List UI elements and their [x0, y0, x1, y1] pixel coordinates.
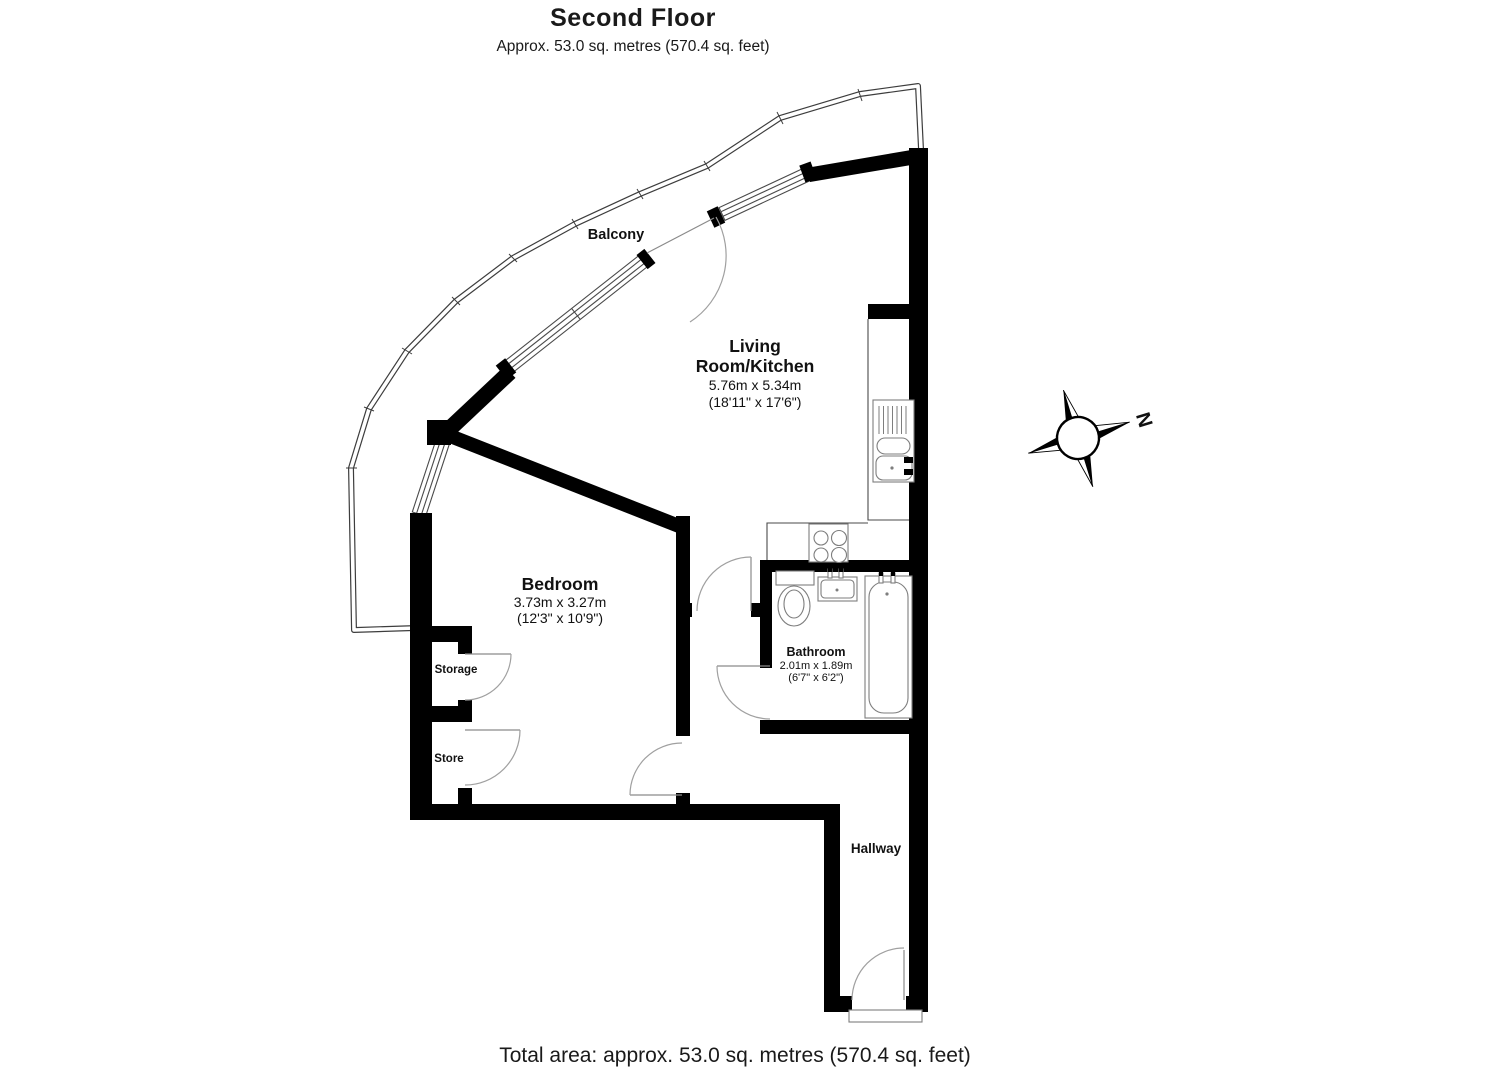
bathtub [865, 572, 912, 718]
floor-plan-page: N Balcony Living Room/Kitchen 5.76m x 5.… [0, 0, 1485, 1080]
bathroom-fixtures [776, 568, 912, 718]
page-subtitle: Approx. 53.0 sq. metres (570.4 sq. feet) [0, 38, 1266, 56]
svg-text:(18'11" x 17'6"): (18'11" x 17'6") [709, 394, 802, 410]
storage-door [465, 654, 511, 700]
svg-text:Living: Living [729, 336, 781, 356]
bathroom-label: Bathroom 2.01m x 1.89m (6'7" x 6'2") [780, 645, 853, 684]
store-label: Store [434, 753, 463, 765]
plan-header: Second Floor Approx. 53.0 sq. metres (57… [0, 4, 1266, 56]
svg-text:3.73m x 3.27m: 3.73m x 3.27m [514, 594, 607, 610]
bedroom-label: Bedroom 3.73m x 3.27m (12'3" x 10'9") [514, 574, 607, 626]
window-band-1 [502, 253, 651, 374]
svg-text:Bathroom: Bathroom [786, 645, 845, 659]
hob [809, 524, 848, 563]
sink-tap [904, 457, 913, 463]
svg-text:Room/Kitchen: Room/Kitchen [696, 356, 815, 376]
total-area-text: Total area: approx. 53.0 sq. metres (570… [0, 1044, 1470, 1068]
doors [465, 557, 922, 1022]
living-room-label: Living Room/Kitchen 5.76m x 5.34m (18'11… [696, 336, 815, 410]
sink-tap [904, 469, 913, 475]
balcony-door [647, 217, 726, 322]
storage-label: Storage [435, 664, 478, 676]
north-arrow [1014, 374, 1145, 502]
balcony-label: Balcony [588, 227, 644, 243]
compass: N [1014, 367, 1169, 502]
bedroom-door [630, 743, 682, 795]
bathroom-door [717, 666, 770, 719]
svg-text:(12'3" x 10'9"): (12'3" x 10'9") [517, 610, 603, 626]
svg-text:(6'7" x 6'2"): (6'7" x 6'2") [788, 672, 843, 684]
compass-north-label: N [1131, 410, 1156, 430]
hallway-label: Hallway [851, 841, 902, 856]
bedroom-window [412, 439, 449, 517]
store-door [465, 730, 520, 785]
svg-text:Bedroom: Bedroom [522, 574, 599, 594]
floor-plan-drawing: N Balcony Living Room/Kitchen 5.76m x 5.… [0, 0, 1485, 1080]
page-title: Second Floor [0, 4, 1266, 33]
living-room-corridor-door [697, 557, 751, 611]
bathroom-basin [818, 568, 857, 601]
entrance-threshold [849, 1010, 922, 1022]
parapet-joint-ticks [346, 89, 862, 468]
svg-text:2.01m x 1.89m: 2.01m x 1.89m [780, 660, 853, 672]
kitchen-sink [873, 400, 914, 482]
svg-text:5.76m x 5.34m: 5.76m x 5.34m [709, 377, 802, 393]
toilet [776, 571, 814, 626]
window-band-2 [719, 168, 811, 221]
